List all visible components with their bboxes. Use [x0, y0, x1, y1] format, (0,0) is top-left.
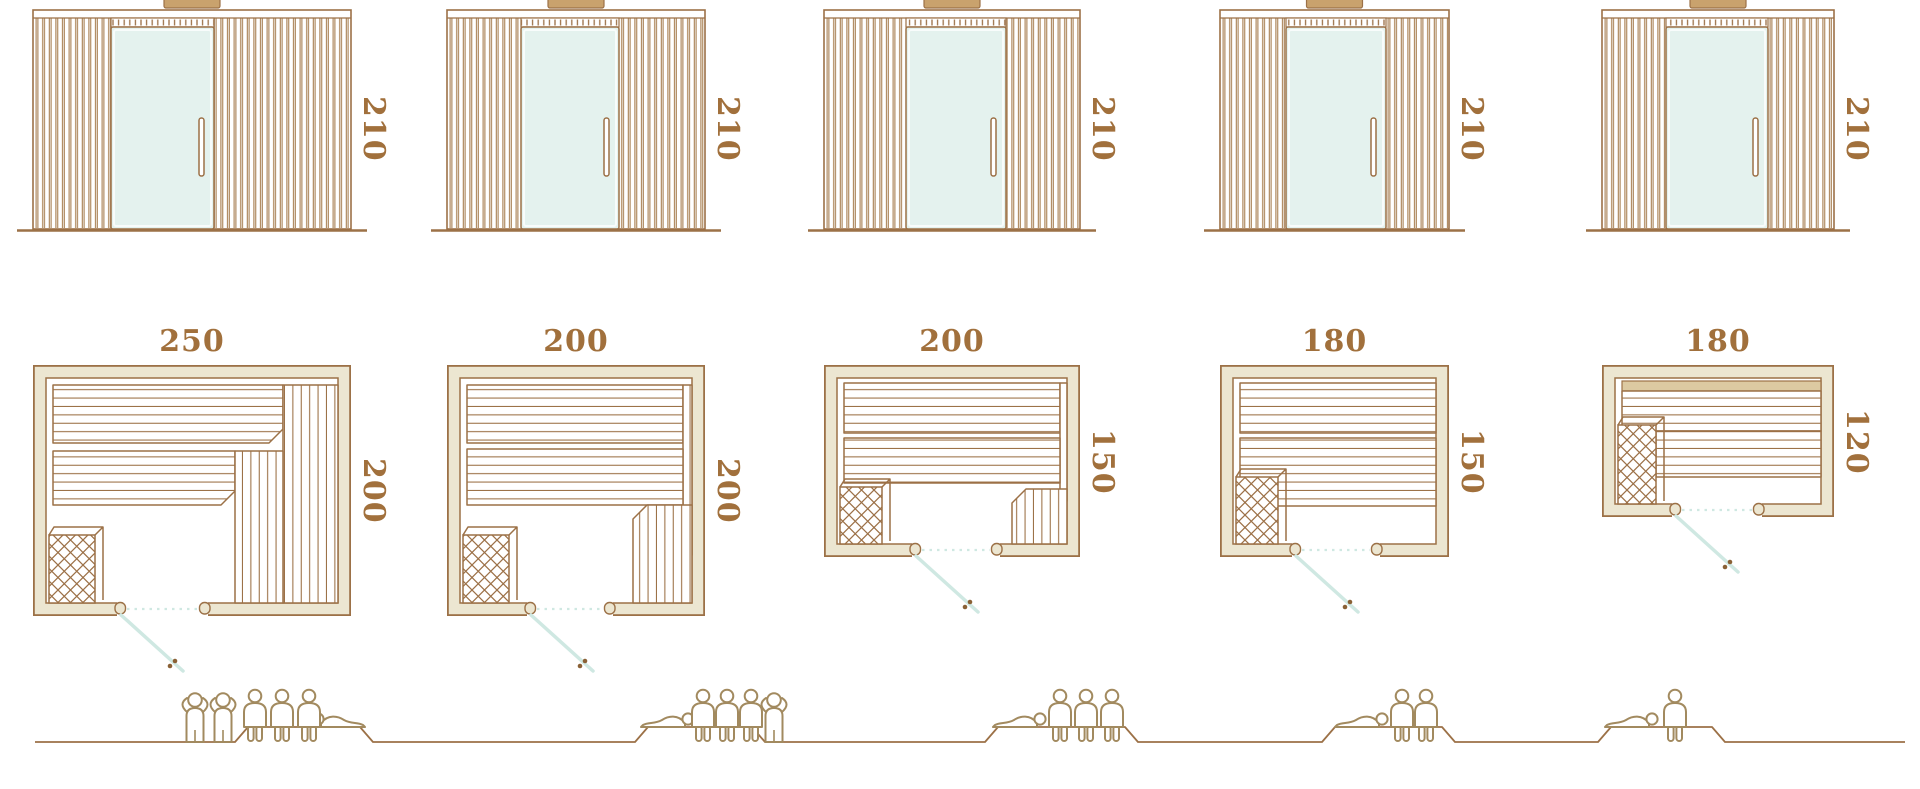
sauna-front-elevation — [806, 0, 1098, 238]
plan-depth-label: 150 — [1456, 429, 1486, 493]
capacity-group — [183, 690, 366, 742]
bench-horizontal — [1240, 383, 1436, 433]
wall-slats-left — [448, 18, 521, 228]
wall-slats-right — [1768, 18, 1833, 228]
door-handle — [991, 118, 996, 176]
wall-slats-right — [1386, 18, 1448, 228]
elevation-height-label: 210 — [358, 96, 388, 160]
roof-cap — [1690, 0, 1746, 8]
door-handle-dot — [1728, 560, 1733, 565]
door-vent-grille — [906, 18, 1006, 27]
heater — [1618, 425, 1656, 504]
sauna-front-elevation — [1202, 0, 1467, 238]
bench-horizontal — [844, 383, 1060, 433]
door-handle — [1371, 118, 1376, 176]
wall-slats-left — [1221, 18, 1286, 228]
sauna-front-elevation — [429, 0, 723, 238]
sauna-floor-plan — [1602, 365, 1834, 587]
elevation-height-label: 210 — [1456, 96, 1486, 160]
plan-depth-label: 200 — [712, 458, 742, 522]
door-handle-dot — [963, 605, 968, 610]
door-handle-dot — [1343, 605, 1348, 610]
door-jamb-left — [525, 603, 536, 615]
plan-depth-label: 150 — [1087, 429, 1117, 493]
plan-width-label: 250 — [33, 324, 351, 359]
door-vent-grille — [1666, 18, 1768, 27]
bench-horizontal — [844, 438, 1060, 483]
heater — [1236, 477, 1278, 544]
sauna-floor-plan — [33, 365, 351, 686]
elevation-height-label: 210 — [1841, 96, 1871, 160]
heater — [49, 535, 95, 603]
bench-vertical — [235, 451, 283, 603]
sauna-front-elevation — [1584, 0, 1852, 238]
sauna-floor-plan — [824, 365, 1080, 627]
capacity-group — [641, 690, 787, 742]
door-handle-dot — [578, 664, 583, 669]
sauna-front-elevation — [15, 0, 369, 238]
bench-vertical — [1012, 489, 1067, 544]
elevation-height-label: 210 — [712, 96, 742, 160]
door-jamb-right — [200, 603, 211, 615]
door-vent-grille — [1286, 18, 1386, 27]
wall-slats-left — [825, 18, 906, 228]
capacity-group — [993, 690, 1123, 741]
door-handle — [604, 118, 609, 176]
door-jamb-right — [1372, 544, 1383, 556]
wall-slats-right — [214, 18, 350, 228]
door-jamb-left — [1670, 504, 1681, 516]
bench-horizontal — [53, 385, 283, 443]
bench-vertical — [283, 385, 338, 603]
plan-depth-label: 200 — [358, 458, 388, 522]
door-vent-grille — [111, 18, 214, 27]
door-jamb-right — [992, 544, 1003, 556]
roof-cap — [548, 0, 604, 8]
bench-vertical — [1060, 383, 1067, 501]
sauna-floor-plan — [447, 365, 705, 686]
bench-horizontal — [467, 385, 683, 443]
plan-width-label: 180 — [1602, 324, 1834, 359]
door-jamb-right — [605, 603, 616, 615]
bench-horizontal — [53, 451, 235, 505]
roof-cap — [1307, 0, 1363, 8]
sauna-size-diagram: 210 250 200 210 200 — [0, 0, 1920, 789]
door-vent-grille — [521, 18, 619, 27]
heater — [463, 535, 509, 603]
plan-width-label: 200 — [447, 324, 705, 359]
wall-slats-left — [1603, 18, 1666, 228]
door-jamb-right — [1754, 504, 1765, 516]
plan-depth-label: 120 — [1841, 409, 1871, 473]
door-jamb-left — [115, 603, 126, 615]
door-handle-dot — [1723, 565, 1728, 570]
plan-width-label: 200 — [824, 324, 1080, 359]
door-handle-dot — [583, 659, 588, 664]
sauna-floor-plan — [1220, 365, 1449, 627]
roof-cap — [924, 0, 980, 8]
door-jamb-left — [910, 544, 921, 556]
door-handle-dot — [168, 664, 173, 669]
bench-backrest — [1622, 381, 1821, 391]
door-handle-dot — [1348, 600, 1353, 605]
bench-horizontal — [1656, 431, 1821, 477]
door-handle — [1753, 118, 1758, 176]
wall-slats-right — [619, 18, 704, 228]
elevation-height-label: 210 — [1087, 96, 1117, 160]
door-handle — [199, 118, 204, 176]
wall-slats-left — [34, 18, 111, 228]
bench-horizontal — [467, 449, 683, 505]
plan-width-label: 180 — [1220, 324, 1449, 359]
heater — [840, 487, 882, 544]
door-handle-dot — [968, 600, 973, 605]
wall-slats-right — [1006, 18, 1079, 228]
capacity-figures — [30, 676, 1910, 776]
capacity-group — [1605, 690, 1686, 741]
door-handle-dot — [173, 659, 178, 664]
roof-cap — [164, 0, 220, 8]
door-jamb-left — [1290, 544, 1301, 556]
capacity-group — [1335, 690, 1437, 741]
bench-vertical — [633, 505, 692, 603]
